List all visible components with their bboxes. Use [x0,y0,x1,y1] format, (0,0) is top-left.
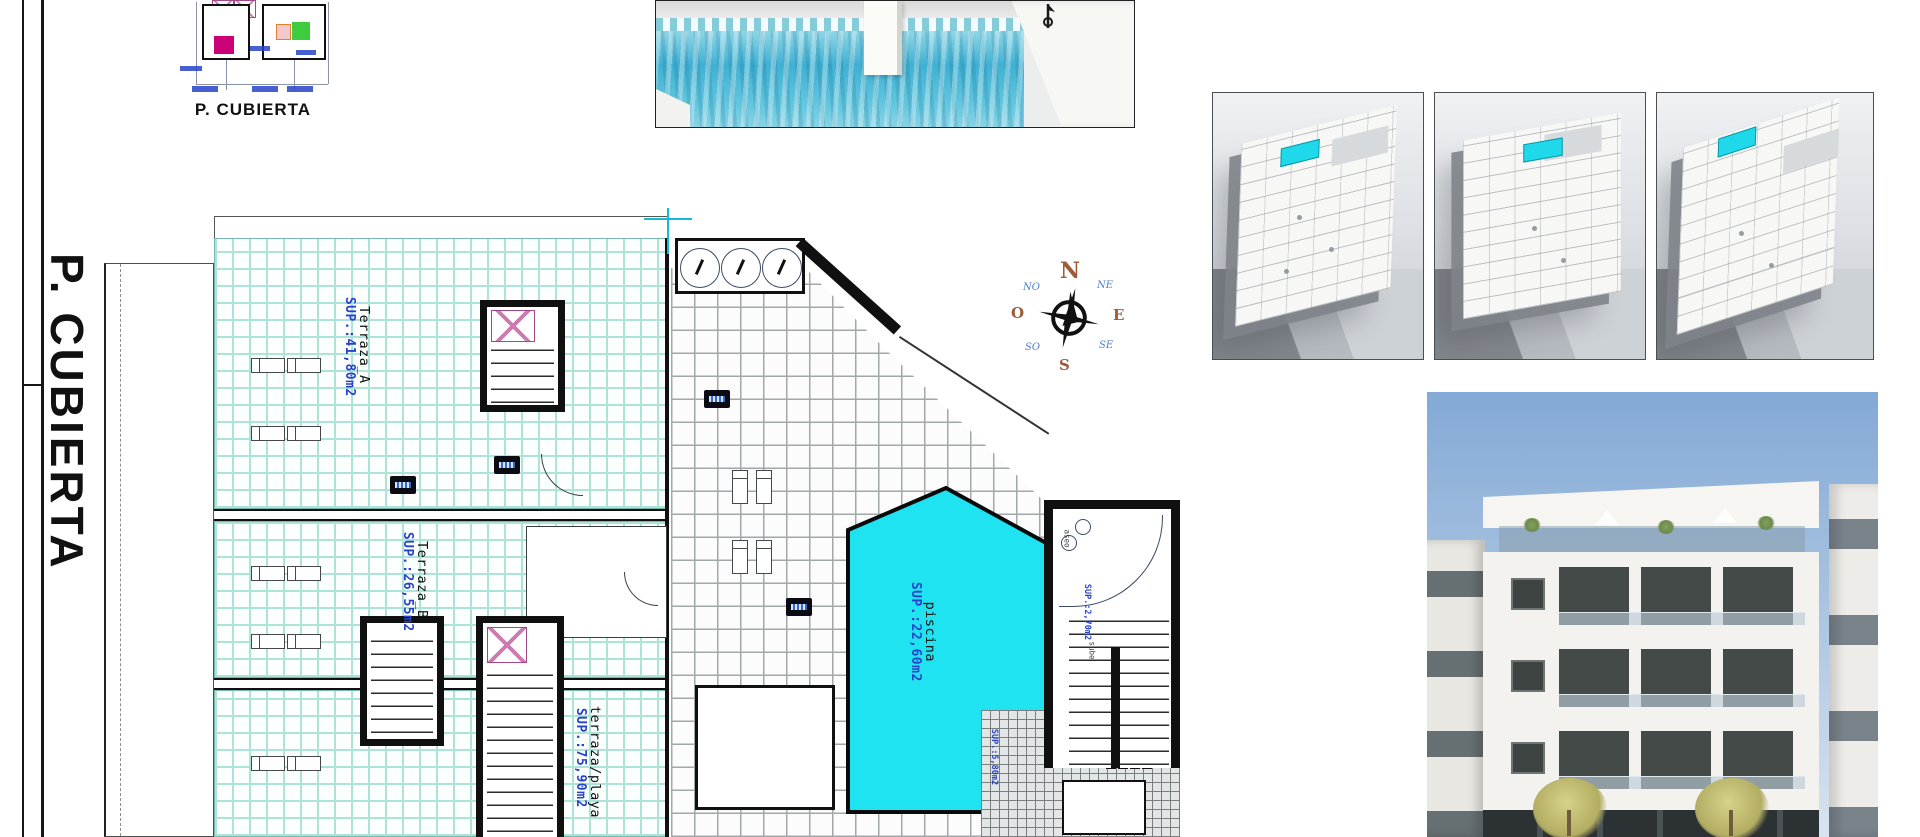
pool-photo-tile-edge [656,18,1024,31]
key-plan-dim-text [252,86,278,92]
key-plan-highlight-orange [276,24,291,40]
room-name: piscina [922,582,937,682]
facade-floor-band [1559,649,1805,707]
stair-treads [371,629,433,733]
stair-treads [487,667,553,832]
stair-hatch [487,627,527,663]
skylight-circle [680,248,720,288]
facade-roof-plant [1657,520,1675,534]
key-plan-highlight-magenta [214,36,234,54]
aerial-render-1 [1212,92,1424,360]
sun-lounger [251,756,285,771]
plan-outline [214,216,215,238]
small-skylight [1062,780,1146,835]
room-label-piscina: piscina SUP.:22,60m2 [907,582,937,682]
equipment-box [390,476,416,494]
annotation-sup-580: SUP.:5,80m2 [989,725,999,789]
aerial-furniture-dot [1561,258,1566,263]
key-plan-boundary [196,84,328,85]
sun-lounger [732,540,748,574]
facade-tree-trunk [1729,810,1733,836]
sun-lounger [756,540,772,574]
sun-lounger [732,470,748,504]
key-plan-mini-label [296,50,316,55]
aerial-render-2 [1434,92,1646,360]
key-plan-dim-line [226,60,227,90]
sun-lounger [287,426,321,441]
plan-overhang-dashed-line [120,264,121,836]
sun-lounger [756,470,772,504]
facade-floor-band [1559,731,1805,789]
pool-photo-water [656,31,1024,128]
facade-roof-terrace [1499,526,1805,553]
facade-balcony-rail [1559,612,1805,625]
aerial-furniture-dot [1329,247,1334,252]
room-area: SUP.:75,90m2 [572,706,587,810]
room-label-terraza-b: Terraza_B SUP.:26,55m2 [399,532,429,628]
plan-outline [214,216,669,217]
cad-reference-line [644,218,692,220]
facade-small-window [1511,578,1545,610]
sun-lounger [251,358,285,373]
facade-floor-band [1559,567,1805,625]
skylight-circle [762,248,802,288]
room-label-terraza-a: Terraza_A SUP.:41,80m2 [341,297,371,393]
key-plan-mini-label [250,46,270,51]
skylight-box [675,238,805,294]
room-area: SUP.:26,55m2 [399,532,414,628]
key-plan-mini-label [180,66,202,71]
large-skylight [695,685,835,810]
drawing-sheet: P. CUBIERTA P. CUBIERTA [0,0,1920,837]
stair-spine-wall [1111,647,1120,768]
sun-lounger [287,756,321,771]
cad-reference-line [667,208,669,254]
key-plan-highlight-green [292,22,310,40]
sun-lounger [287,566,321,581]
key-plan-boundary [196,2,197,84]
stair-block [480,300,565,412]
key-plan-title: P. CUBIERTA [188,100,318,120]
roof-floor-plan: Terraza_A SUP.:41,80m2 Terraza_B SUP.:26… [104,208,1180,837]
plan-left-eave-strip [104,263,214,837]
key-plan-dim-text [192,86,218,92]
facade-roof-plant [1757,516,1775,530]
aerial-render-3 [1656,92,1874,360]
room-name: terraza/playa [587,706,602,810]
annotation-aseo: aseo [1063,530,1072,566]
room-label-terraza-playa: terraza/playa SUP.:75,90m2 [572,706,602,810]
stair-block [360,616,444,746]
key-plan: P. CUBIERTA [150,0,345,132]
north-marker-icon [1038,2,1058,30]
equipment-box [786,598,812,616]
stair-treads [491,345,554,403]
party-wall [214,509,669,521]
facade-tree-trunk [1567,810,1571,836]
aerial-furniture-dot [1532,226,1537,231]
terrace-a-tiles [214,238,669,509]
equipment-box [494,456,520,474]
room-area: SUP.:41,80m2 [341,297,356,393]
pool-render-photo [655,0,1135,128]
room-name: Terraza_B [414,532,429,628]
sheet-title-vertical: P. CUBIERTA [40,253,94,571]
facade-small-window [1511,660,1545,692]
facade-balcony-rail [1559,694,1805,707]
room-name: Terraza_A [356,297,371,393]
aseo-fixture [1075,519,1091,535]
key-plan-boundary [328,2,329,84]
facade-render [1427,392,1878,837]
skylight-circle [721,248,761,288]
equipment-box [704,390,730,408]
facade-small-window [1511,742,1545,774]
stair-hatch [491,310,535,342]
room-area: SUP.:22,60m2 [907,582,922,682]
pool-photo-column [864,1,902,75]
key-plan-dim-text [287,86,313,92]
facade-neighbor-right [1829,484,1878,837]
facade-roof-plant [1523,518,1541,532]
sun-lounger [251,566,285,581]
stair-block [476,616,564,837]
sheet-border-tick [22,384,42,386]
sun-lounger [287,634,321,649]
sun-lounger [287,358,321,373]
sun-lounger [251,634,285,649]
annotation-sube: sube [1088,642,1097,678]
sheet-border-line [22,0,24,837]
sun-lounger [251,426,285,441]
facade-neighbor-left [1427,540,1485,837]
annotation-sup-270: SUP.:2,70m2 [1082,580,1092,644]
